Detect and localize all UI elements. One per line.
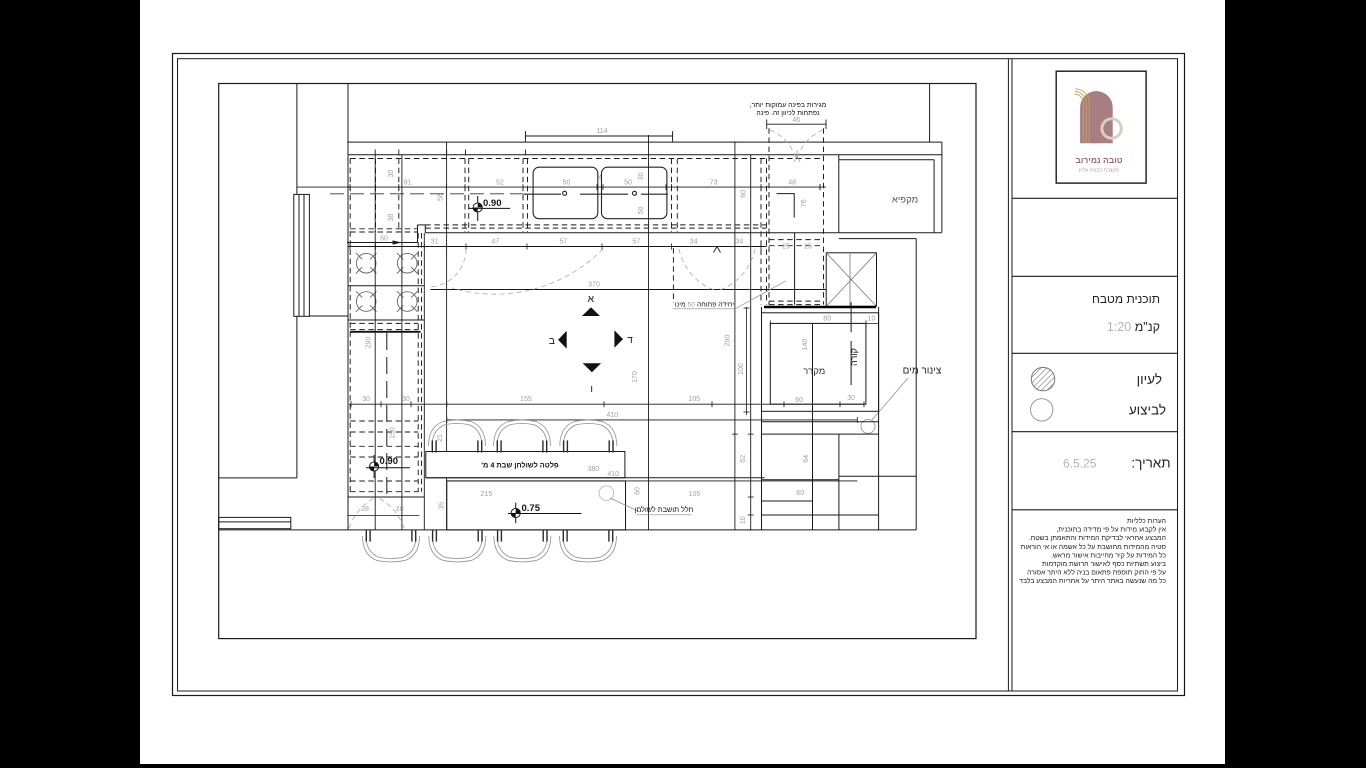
svg-text:60: 60 [796, 490, 804, 497]
svg-text:30: 30 [847, 395, 855, 402]
svg-text:60: 60 [795, 397, 803, 404]
svg-text:כל המידות על קיר מחייבות אישור: כל המידות על קיר מחייבות אישור מראש. [1051, 551, 1166, 559]
svg-text:ו: ו [590, 384, 593, 395]
svg-text:חלל תושבת לשולחן: חלל תושבת לשולחן [635, 505, 694, 514]
svg-text:צינור מים: צינור מים [903, 366, 942, 377]
svg-text:34: 34 [690, 239, 698, 246]
svg-text:57: 57 [632, 239, 640, 246]
svg-text:62: 62 [740, 455, 747, 463]
svg-text:380: 380 [587, 466, 599, 473]
svg-text:יחידה פתוחה 50 מינו: יחידה פתוחה 50 מינו [675, 302, 734, 309]
svg-text:על פי החוק תוספת פתאום בניה לל: על פי החוק תוספת פתאום בניה ללא היתר אסו… [1027, 569, 1166, 577]
svg-text:25: 25 [782, 244, 790, 251]
svg-text:105: 105 [689, 491, 701, 498]
svg-text:0.90: 0.90 [483, 198, 502, 209]
svg-text:370: 370 [588, 282, 600, 289]
svg-text:410: 410 [606, 412, 618, 419]
svg-text:48: 48 [788, 180, 796, 187]
svg-text:105: 105 [688, 396, 700, 403]
svg-text:30: 30 [402, 396, 410, 403]
svg-text:פלטה לשולחן שבת 4 מ': פלטה לשולחן שבת 4 מ' [481, 461, 559, 470]
svg-text:סטיה מהמידות מחושבת על כל אשמה: סטיה מהמידות מחושבת על כל אשמה או אי הור… [1021, 543, 1167, 551]
svg-text:58: 58 [438, 193, 445, 201]
svg-text:מעצבת לבנות עליון: מעצבת לבנות עליון [1079, 167, 1120, 174]
svg-text:50: 50 [624, 180, 632, 187]
svg-text:נפתחות לכיוון זה. פינה: נפתחות לכיוון זה. פינה [756, 109, 820, 117]
svg-text:30: 30 [388, 170, 395, 178]
svg-text:6.5.25: 6.5.25 [1063, 457, 1097, 471]
svg-text:73: 73 [710, 180, 718, 187]
svg-text:80: 80 [823, 315, 831, 322]
svg-text:המבצע אחראי לבדיקת המידות והתא: המבצע אחראי לבדיקת המידות והתאמתן בשטח. [1029, 534, 1166, 542]
svg-text:35: 35 [438, 502, 445, 510]
svg-text:155: 155 [520, 396, 532, 403]
svg-text:0.75: 0.75 [522, 503, 541, 514]
svg-text:170: 170 [632, 371, 639, 383]
svg-text:0.90: 0.90 [380, 456, 399, 467]
svg-text:60: 60 [740, 190, 747, 198]
svg-text:טובה נמירוב: טובה נמירוב [1075, 155, 1122, 165]
svg-text:60: 60 [635, 487, 642, 495]
svg-text:לביצוע: לביצוע [1129, 403, 1166, 418]
svg-text:25: 25 [804, 244, 812, 251]
svg-text:60: 60 [380, 236, 388, 243]
svg-text:א: א [588, 294, 595, 305]
svg-text:ד: ד [627, 335, 633, 346]
svg-text:לעיון: לעיון [1137, 372, 1162, 387]
svg-text:28: 28 [361, 506, 369, 513]
svg-text:50: 50 [563, 180, 571, 187]
svg-text:28: 28 [396, 506, 404, 513]
svg-text:46: 46 [792, 117, 800, 124]
svg-text:114: 114 [596, 128, 607, 135]
svg-text:215: 215 [481, 491, 493, 498]
svg-text:410: 410 [607, 471, 619, 478]
svg-text:תוכנית מטבח: תוכנית מטבח [1092, 292, 1160, 306]
svg-text:קורה: קורה [849, 348, 859, 366]
svg-text:290: 290 [366, 337, 373, 349]
svg-text:31: 31 [431, 239, 439, 246]
svg-text:34: 34 [736, 239, 744, 246]
svg-text:30: 30 [362, 396, 370, 403]
svg-text:290: 290 [725, 335, 732, 347]
svg-text:38: 38 [388, 214, 395, 222]
svg-text:מקרר: מקרר [803, 366, 825, 377]
svg-text:64: 64 [803, 455, 810, 463]
svg-text:100: 100 [738, 363, 745, 375]
svg-text:אין לקבוע מידות על פי מדידה בת: אין לקבוע מידות על פי מדידה בתוכנית, [1056, 526, 1166, 534]
svg-text:30: 30 [638, 172, 645, 180]
svg-text:ביצוע תשתיות כסף לאישור חרושת: ביצוע תשתיות כסף לאישור חרושת מוקדמות [1042, 560, 1166, 568]
svg-text:76: 76 [801, 199, 808, 207]
svg-text:150: 150 [389, 427, 396, 439]
svg-text:10: 10 [740, 516, 747, 524]
svg-text:מגירות בפינה עמוקות יותר,: מגירות בפינה עמוקות יותר, [750, 102, 827, 109]
svg-text:הערות כלליות: הערות כלליות [1127, 517, 1166, 525]
svg-text:52: 52 [496, 180, 504, 187]
svg-text:50: 50 [638, 206, 645, 214]
svg-text:מקפיא: מקפיא [892, 195, 918, 206]
svg-text:21: 21 [437, 434, 444, 442]
svg-text:תאריך:: תאריך: [1131, 456, 1170, 471]
svg-text:כל מה שנעשה באתר היתר על אחריו: כל מה שנעשה באתר היתר על אחריות המבצע בל… [1019, 577, 1166, 585]
svg-text:10: 10 [868, 315, 876, 322]
svg-text:ב: ב [549, 336, 555, 347]
svg-text:140: 140 [802, 339, 809, 351]
svg-text:47: 47 [492, 239, 500, 246]
svg-text:91: 91 [404, 180, 412, 187]
svg-text:57: 57 [560, 239, 568, 246]
svg-text:קנ"מ 1:20: קנ"מ 1:20 [1107, 320, 1160, 334]
